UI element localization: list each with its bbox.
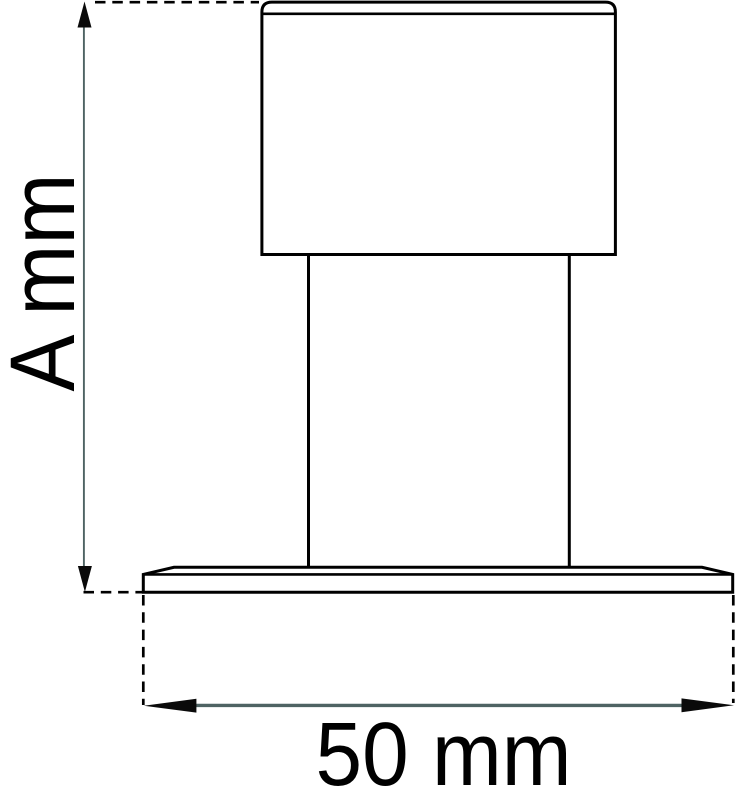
svg-text:50 mm: 50 mm <box>316 705 572 805</box>
svg-text:A mm: A mm <box>0 174 94 392</box>
